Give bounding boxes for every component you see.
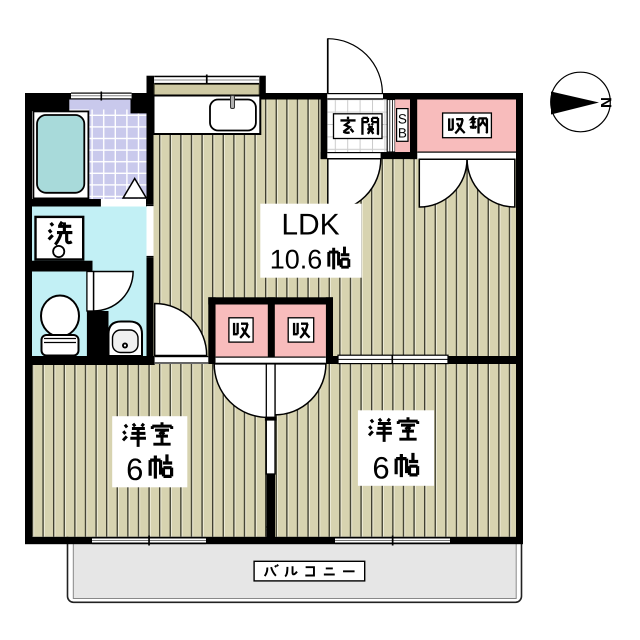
svg-text:LDK: LDK [281,209,339,242]
svg-text:6: 6 [372,451,389,486]
svg-text:10.6: 10.6 [270,245,323,275]
svg-text:B: B [398,126,407,141]
svg-text:S: S [398,112,407,127]
svg-text:N: N [597,97,614,108]
svg-text:6: 6 [126,452,143,487]
